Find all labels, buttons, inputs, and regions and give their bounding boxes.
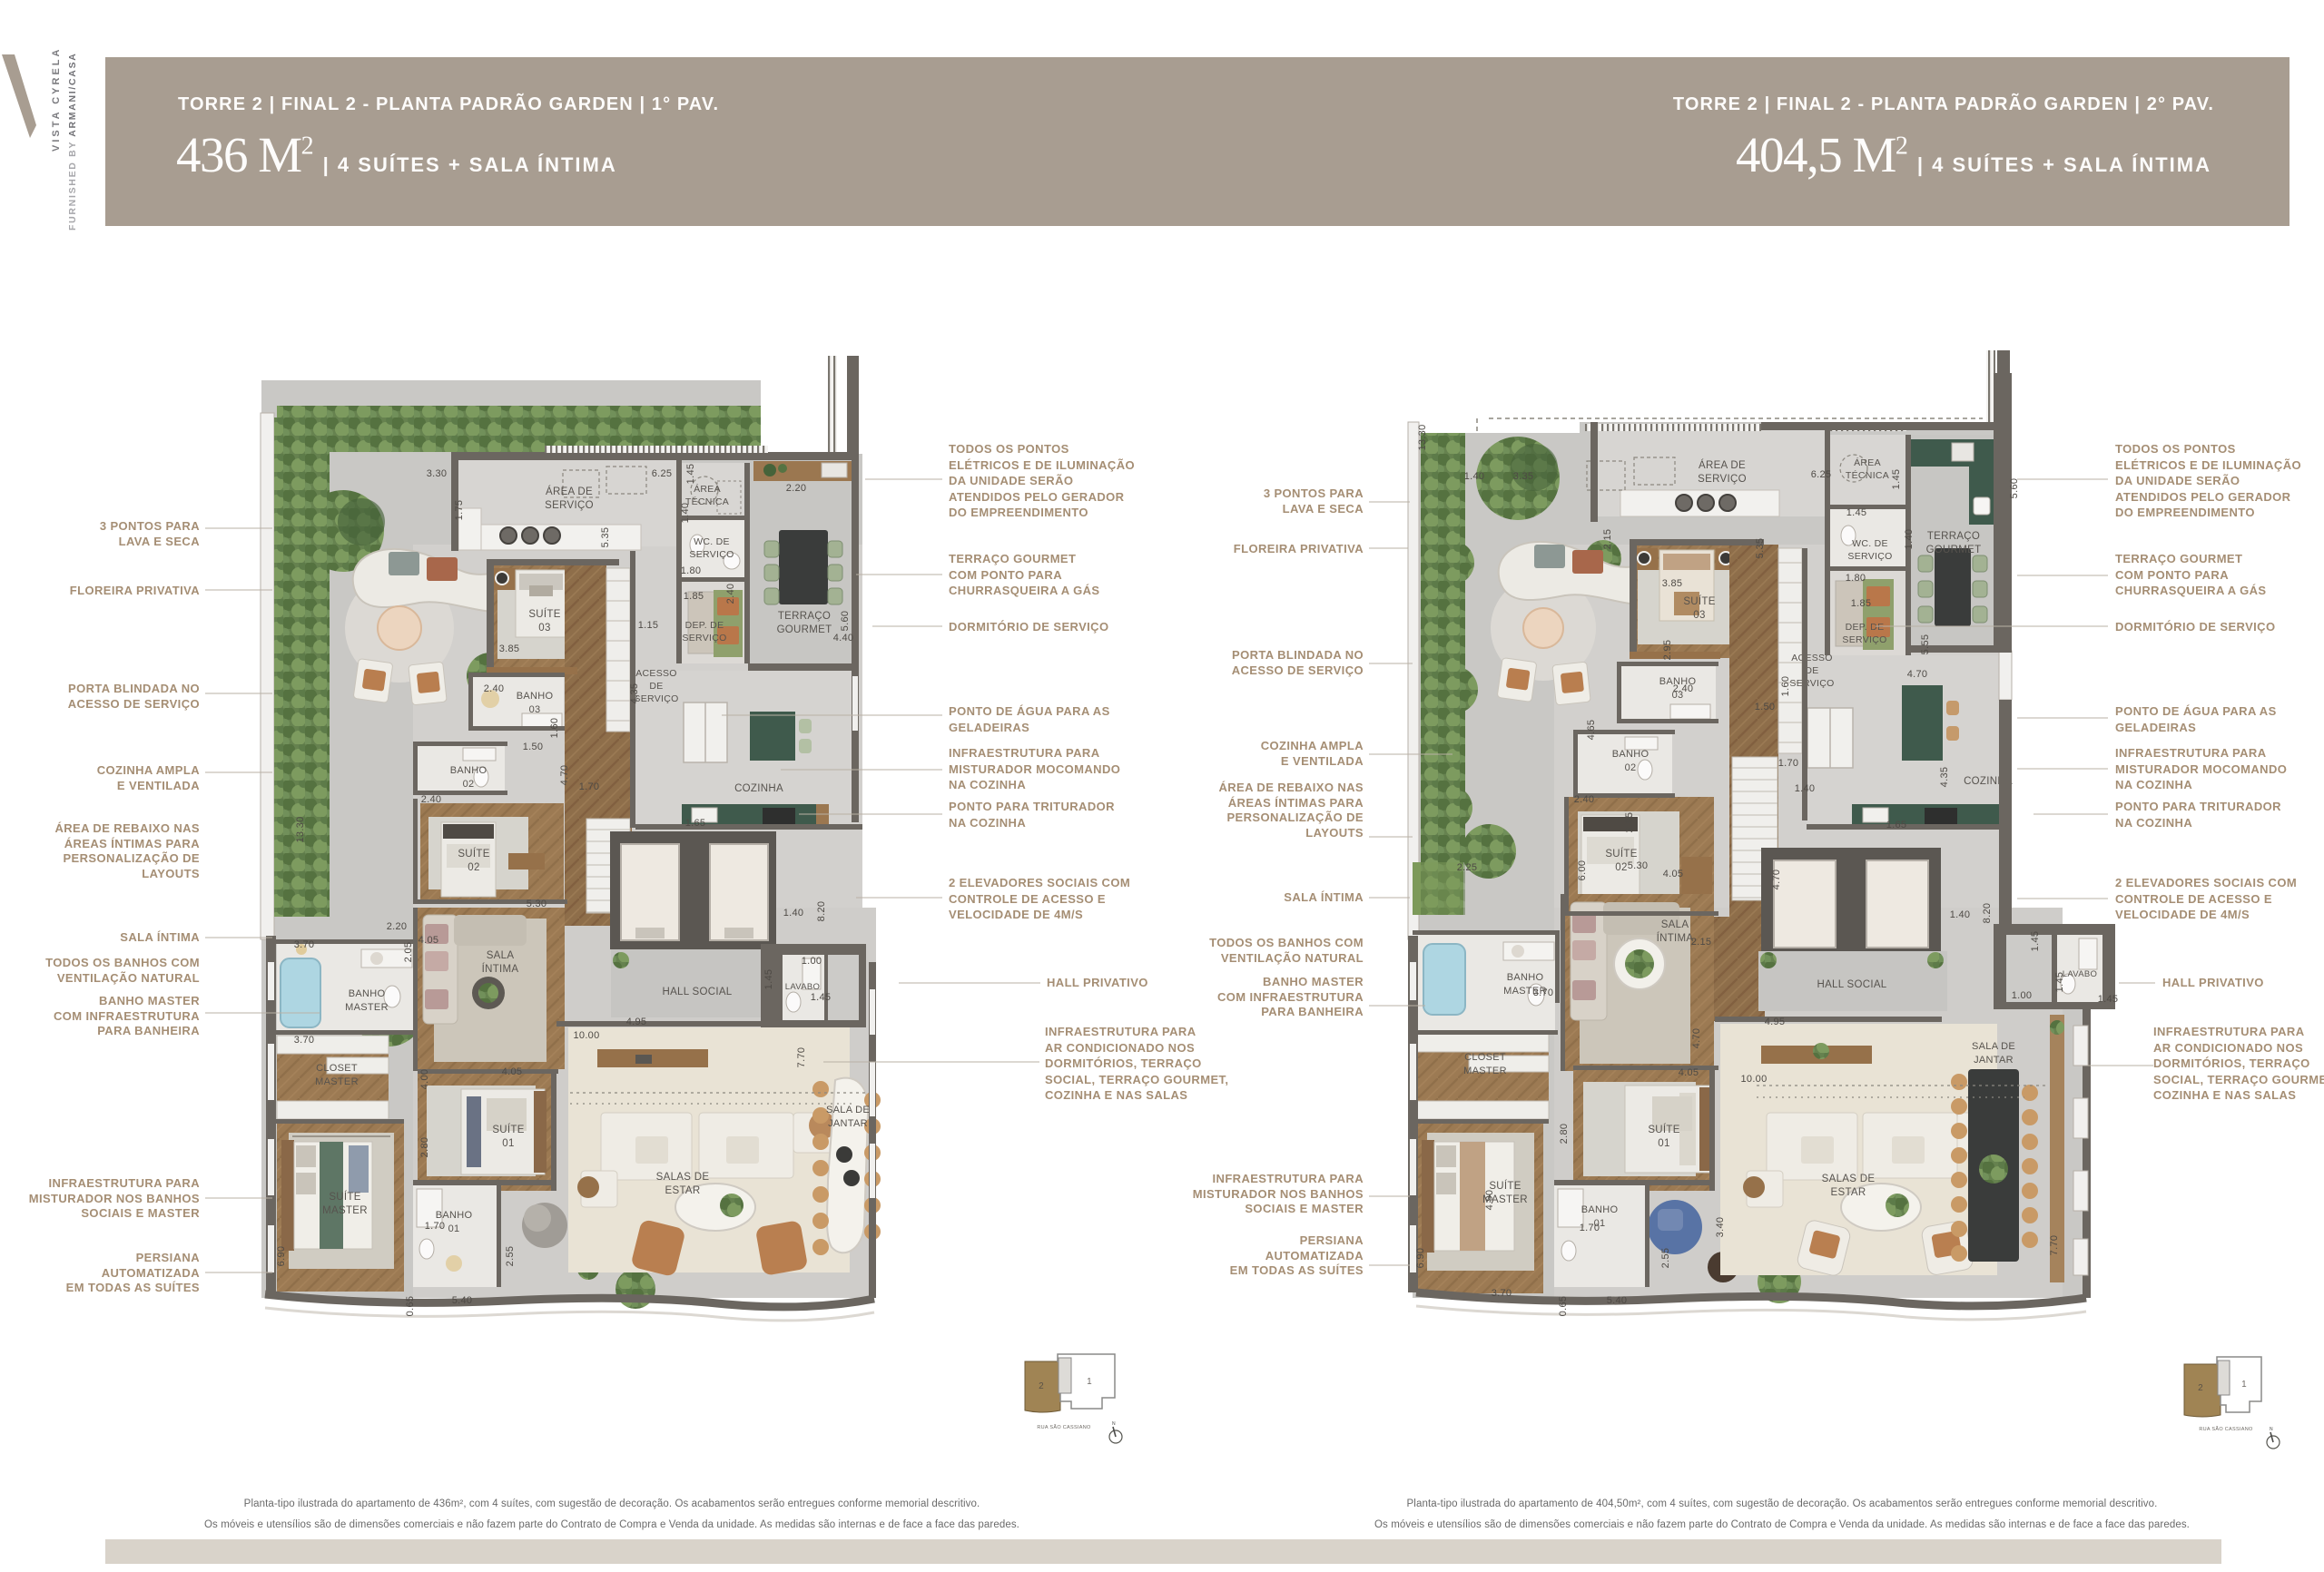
svg-text:02: 02 (463, 779, 475, 790)
svg-text:2.20: 2.20 (786, 483, 807, 494)
svg-text:2.40: 2.40 (1673, 683, 1694, 694)
svg-text:3.30: 3.30 (427, 468, 448, 479)
svg-text:5.60: 5.60 (840, 611, 851, 632)
svg-text:HALL SOCIAL: HALL SOCIAL (662, 987, 732, 997)
svg-text:SERVIÇO: SERVIÇO (545, 500, 594, 511)
svg-text:3.35: 3.35 (1513, 471, 1534, 482)
svg-text:SALA: SALA (1661, 919, 1689, 930)
svg-text:1.15: 1.15 (638, 620, 659, 631)
svg-text:6.25: 6.25 (652, 468, 673, 479)
svg-text:02: 02 (1615, 862, 1627, 873)
svg-text:03: 03 (529, 704, 541, 715)
svg-text:2.05: 2.05 (403, 942, 414, 963)
svg-text:TERRAÇO: TERRAÇO (1927, 531, 1980, 542)
svg-text:13.30: 13.30 (1417, 424, 1428, 450)
svg-text:3.70: 3.70 (1533, 987, 1554, 998)
svg-text:5.40: 5.40 (452, 1295, 473, 1306)
svg-text:ESTAR: ESTAR (665, 1185, 701, 1196)
svg-text:01: 01 (448, 1223, 460, 1234)
svg-text:LAVABO: LAVABO (785, 982, 820, 992)
svg-text:1: 1 (2241, 1380, 2247, 1390)
svg-text:SUÍTE: SUÍTE (1648, 1124, 1679, 1135)
svg-text:4.40: 4.40 (833, 633, 854, 644)
svg-text:2.55: 2.55 (1660, 1248, 1671, 1269)
svg-text:4.95: 4.95 (1765, 1017, 1786, 1027)
svg-text:1.40: 1.40 (1795, 783, 1816, 794)
svg-text:4.05: 4.05 (419, 935, 439, 946)
svg-text:SERVIÇO: SERVIÇO (1847, 551, 1892, 562)
svg-text:0.65: 0.65 (1558, 1296, 1569, 1317)
svg-text:1.60: 1.60 (549, 718, 560, 739)
svg-text:CLOSET: CLOSET (1464, 1052, 1506, 1063)
svg-text:1.40: 1.40 (783, 908, 804, 919)
svg-text:SALA DE: SALA DE (826, 1105, 870, 1115)
svg-text:1.70: 1.70 (1778, 758, 1799, 769)
svg-text:BANHO: BANHO (450, 765, 487, 776)
svg-text:2.20: 2.20 (387, 921, 408, 932)
svg-text:2.40: 2.40 (1574, 794, 1595, 805)
svg-text:7.70: 7.70 (2049, 1235, 2060, 1256)
svg-text:DE: DE (649, 681, 663, 692)
svg-text:4.90: 4.90 (1484, 1190, 1495, 1211)
svg-text:6.90: 6.90 (1415, 1248, 1426, 1269)
svg-text:2.40: 2.40 (484, 683, 505, 694)
svg-text:4.65: 4.65 (1586, 720, 1597, 741)
svg-text:4.70: 4.70 (1691, 1028, 1702, 1049)
svg-text:1.45: 1.45 (2098, 994, 2119, 1005)
svg-text:TERRAÇO: TERRAÇO (778, 611, 831, 622)
svg-text:2: 2 (1039, 1381, 1044, 1391)
svg-text:8.20: 8.20 (816, 901, 827, 922)
svg-text:SALAS DE: SALAS DE (656, 1172, 710, 1183)
svg-text:5.40: 5.40 (1607, 1295, 1628, 1306)
svg-text:2: 2 (2198, 1383, 2203, 1393)
svg-text:1: 1 (1087, 1377, 1092, 1387)
svg-text:SUÍTE: SUÍTE (1605, 848, 1637, 860)
svg-text:6.90: 6.90 (276, 1246, 287, 1267)
svg-text:JANTAR: JANTAR (1974, 1055, 2014, 1066)
svg-text:5.60: 5.60 (2009, 478, 2020, 499)
svg-text:3.70: 3.70 (294, 939, 315, 950)
svg-text:3.85: 3.85 (499, 644, 520, 654)
svg-text:TÉCNICA: TÉCNICA (685, 496, 729, 507)
svg-text:3.70: 3.70 (1492, 1288, 1512, 1299)
svg-text:1.45: 1.45 (1846, 507, 1867, 518)
svg-text:LAVABO: LAVABO (2063, 969, 2097, 979)
svg-text:1.40: 1.40 (1950, 909, 1971, 920)
svg-text:ÍNTIMA: ÍNTIMA (1657, 932, 1694, 944)
svg-text:1.70: 1.70 (1580, 1223, 1600, 1233)
svg-text:1.65: 1.65 (685, 818, 706, 829)
svg-text:BANHO: BANHO (517, 691, 554, 702)
svg-text:ESTAR: ESTAR (1831, 1187, 1866, 1198)
svg-text:1.70: 1.70 (425, 1221, 446, 1232)
svg-text:1.50: 1.50 (523, 742, 544, 752)
svg-text:1.00: 1.00 (2012, 990, 2033, 1001)
svg-text:1.45: 1.45 (811, 992, 832, 1003)
svg-text:GOURMET: GOURMET (777, 624, 832, 635)
svg-text:SERVIÇO: SERVIÇO (689, 549, 734, 560)
svg-text:0.65: 0.65 (405, 1296, 416, 1317)
svg-text:2.15: 2.15 (1691, 937, 1712, 948)
svg-text:ÁREA DE: ÁREA DE (546, 486, 593, 497)
svg-text:3.70: 3.70 (294, 1035, 315, 1046)
svg-text:1.45: 1.45 (2054, 972, 2065, 993)
svg-text:4.70: 4.70 (1907, 669, 1928, 680)
svg-text:BANHO: BANHO (1612, 749, 1649, 760)
svg-text:ÁREA: ÁREA (1854, 457, 1881, 468)
svg-text:SERVIÇO: SERVIÇO (634, 693, 678, 704)
svg-text:DEP. DE: DEP. DE (685, 620, 724, 631)
svg-text:01: 01 (502, 1138, 514, 1149)
svg-text:2.80: 2.80 (419, 1137, 430, 1158)
svg-text:4.05: 4.05 (1663, 869, 1684, 879)
svg-text:2.40: 2.40 (725, 584, 736, 604)
svg-text:4.95: 4.95 (626, 1017, 647, 1027)
svg-text:01: 01 (1658, 1138, 1669, 1149)
svg-text:BANHO: BANHO (436, 1210, 473, 1221)
svg-text:10.00: 10.00 (573, 1030, 599, 1041)
svg-text:3.40: 3.40 (1715, 1217, 1726, 1238)
svg-text:1.40: 1.40 (1904, 529, 1915, 550)
svg-text:4.35: 4.35 (629, 683, 640, 704)
svg-text:SUÍTE: SUÍTE (492, 1124, 524, 1135)
svg-text:2.15: 2.15 (1602, 529, 1613, 550)
svg-text:MASTER: MASTER (345, 1002, 389, 1013)
svg-text:1.40: 1.40 (680, 503, 691, 524)
svg-text:GOURMET: GOURMET (1926, 545, 1982, 555)
svg-text:N: N (2270, 1427, 2273, 1432)
svg-text:MASTER: MASTER (1463, 1066, 1507, 1076)
svg-text:1.80: 1.80 (1846, 573, 1866, 584)
svg-text:SALAS DE: SALAS DE (1822, 1174, 1876, 1184)
svg-text:4.35: 4.35 (1939, 767, 1950, 788)
svg-text:4.05: 4.05 (1679, 1067, 1699, 1078)
svg-text:02: 02 (1625, 762, 1637, 773)
svg-text:RUA SÃO CASSIANO: RUA SÃO CASSIANO (2199, 1426, 2253, 1432)
svg-text:ÁREA: ÁREA (694, 483, 721, 495)
svg-text:JANTAR: JANTAR (828, 1118, 868, 1129)
svg-text:7.70: 7.70 (796, 1047, 807, 1068)
svg-text:SALA DE: SALA DE (1972, 1041, 2015, 1052)
svg-text:COZINHA: COZINHA (734, 783, 783, 794)
svg-text:4.70: 4.70 (1771, 870, 1782, 890)
svg-text:RUA SÃO CASSIANO: RUA SÃO CASSIANO (1037, 1424, 1091, 1430)
svg-text:2.95: 2.95 (1624, 812, 1635, 833)
svg-text:DEP. DE: DEP. DE (1846, 622, 1885, 633)
svg-text:MASTER: MASTER (315, 1076, 359, 1087)
svg-text:1.60: 1.60 (1780, 676, 1791, 697)
svg-text:BANHO: BANHO (1507, 972, 1544, 983)
svg-text:TÉCNICA: TÉCNICA (1846, 469, 1889, 481)
svg-text:1.45: 1.45 (685, 464, 696, 485)
svg-text:4.05: 4.05 (502, 1066, 523, 1077)
svg-text:1.50: 1.50 (1755, 702, 1776, 712)
svg-text:2.55: 2.55 (505, 1246, 516, 1267)
svg-text:10.00: 10.00 (1740, 1074, 1767, 1085)
svg-text:5.35: 5.35 (1755, 538, 1766, 559)
svg-text:5.30: 5.30 (1628, 860, 1649, 871)
svg-text:8.20: 8.20 (1982, 903, 1993, 924)
svg-text:WC. DE: WC. DE (1852, 538, 1888, 549)
svg-text:BANHO: BANHO (1581, 1204, 1619, 1215)
svg-text:03: 03 (538, 623, 550, 634)
svg-text:SUÍTE: SUÍTE (329, 1191, 360, 1203)
svg-text:N: N (1112, 1421, 1116, 1427)
svg-text:1.00: 1.00 (802, 956, 822, 967)
svg-text:SERVIÇO: SERVIÇO (1698, 474, 1747, 485)
svg-text:CLOSET: CLOSET (316, 1063, 358, 1074)
svg-text:5.35: 5.35 (600, 527, 611, 548)
svg-text:SUÍTE: SUÍTE (1683, 595, 1715, 607)
svg-text:2.80: 2.80 (1559, 1124, 1570, 1145)
svg-text:HALL SOCIAL: HALL SOCIAL (1817, 979, 1886, 990)
svg-text:03: 03 (1693, 610, 1705, 621)
svg-text:SALA: SALA (487, 950, 515, 961)
svg-text:2.40: 2.40 (421, 794, 442, 805)
svg-text:4.70: 4.70 (559, 765, 570, 786)
svg-text:3.85: 3.85 (1662, 578, 1683, 589)
svg-text:SUÍTE: SUÍTE (458, 848, 489, 860)
svg-text:1.45: 1.45 (1891, 469, 1902, 490)
svg-text:1.40: 1.40 (1464, 471, 1485, 482)
svg-text:SERVIÇO: SERVIÇO (1789, 678, 1834, 689)
svg-text:2.95: 2.95 (1662, 640, 1673, 661)
svg-text:1.85: 1.85 (1851, 598, 1872, 609)
svg-text:SUÍTE: SUÍTE (528, 608, 560, 620)
svg-text:2.25: 2.25 (1457, 862, 1478, 873)
svg-text:1.45: 1.45 (763, 969, 774, 990)
svg-text:ÁREA DE: ÁREA DE (1699, 459, 1746, 471)
svg-text:1.85: 1.85 (684, 591, 704, 602)
svg-text:SERVIÇO: SERVIÇO (1842, 634, 1886, 645)
svg-text:4.00: 4.00 (419, 1069, 430, 1090)
svg-text:BANHO: BANHO (349, 988, 386, 999)
svg-text:1.80: 1.80 (681, 565, 702, 576)
svg-text:MASTER: MASTER (322, 1205, 368, 1216)
svg-text:6.25: 6.25 (1811, 469, 1832, 480)
svg-text:1.45: 1.45 (2030, 931, 2041, 952)
svg-text:1.70: 1.70 (579, 781, 600, 792)
svg-text:ACESSO: ACESSO (635, 668, 677, 679)
svg-text:5.30: 5.30 (527, 899, 547, 909)
svg-text:1.65: 1.65 (1886, 820, 1907, 830)
svg-text:1.75: 1.75 (454, 500, 465, 521)
svg-text:SERVIÇO: SERVIÇO (682, 633, 726, 644)
svg-text:13.30: 13.30 (295, 816, 306, 842)
svg-text:5.55: 5.55 (1920, 634, 1931, 655)
svg-text:6.00: 6.00 (1577, 860, 1588, 881)
svg-text:ÍNTIMA: ÍNTIMA (482, 963, 519, 975)
svg-text:02: 02 (468, 862, 479, 873)
svg-text:WC. DE: WC. DE (694, 536, 730, 547)
